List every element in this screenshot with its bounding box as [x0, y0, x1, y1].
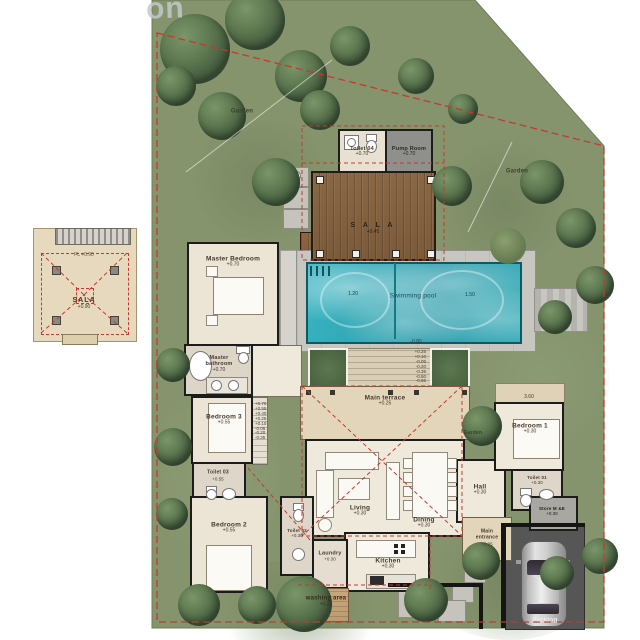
sink-icon — [539, 489, 554, 500]
tree-icon — [156, 348, 190, 382]
pool-ladder-icon — [328, 266, 330, 276]
room-label-living: Living+0.30 — [350, 504, 370, 517]
bush-icon — [490, 228, 526, 264]
bed-icon — [206, 545, 252, 591]
terrace-step-elevations: +0.25+0.10-0.05-0.20-0.35-0.50-0.65 — [408, 350, 426, 384]
room-label-store: Store M &E+0.30 — [537, 506, 567, 516]
parking-label: Parking — [532, 616, 557, 623]
pavilion-column — [52, 316, 61, 325]
pavilion-column — [110, 316, 119, 325]
hob-burner-icon — [394, 544, 398, 548]
tree-icon — [252, 158, 300, 206]
toilet-icon — [520, 494, 532, 507]
pool-ladder-icon — [322, 266, 324, 276]
bed-icon — [213, 277, 264, 315]
deck-column — [392, 250, 400, 258]
car-rear-window — [527, 604, 559, 614]
tv-console-icon — [386, 462, 400, 520]
room-label-toilet02: Toilet 02+0.30 — [287, 528, 307, 538]
tree-icon — [462, 542, 500, 580]
bed-icon — [208, 403, 246, 453]
dining-chair-icon — [403, 500, 413, 511]
room-label-toilet03: Toilet 03+0.55 — [207, 471, 229, 482]
dining-chair-icon — [447, 458, 457, 469]
terrace-column — [330, 390, 335, 395]
tree-icon — [156, 66, 196, 106]
dining-chair-icon — [447, 500, 457, 511]
tree-icon — [538, 300, 572, 334]
toilet-icon — [206, 489, 217, 500]
pavilion-column — [110, 266, 119, 275]
pool-ladder-icon — [316, 266, 318, 276]
nightstand-icon — [206, 315, 218, 326]
tree-icon — [576, 266, 614, 304]
pavilion-label: SALA+0.90 — [72, 297, 95, 311]
tree-icon — [154, 428, 192, 466]
sala-deck — [312, 172, 435, 260]
tree-icon — [404, 578, 448, 622]
terrace-column — [414, 390, 419, 395]
tree-icon — [540, 556, 574, 590]
pool-ladder-icon — [310, 266, 312, 276]
tree-icon — [398, 58, 434, 94]
terrace-column — [306, 390, 311, 395]
room-label-main-entrance: Main entrance+0.25 — [470, 530, 504, 547]
pool-depth-left: 1.20 — [348, 292, 358, 298]
room-label-washing-area: washing area+0.25 — [306, 596, 346, 609]
tree-icon — [300, 90, 340, 130]
room-label-master-bathroom: Master bathroom+0.70 — [196, 355, 242, 373]
room-label-main-terrace: Main terrace+0.25 — [365, 394, 406, 407]
tree-icon — [432, 166, 472, 206]
pool-divider-line — [394, 263, 396, 339]
site-plan: on — [0, 0, 640, 640]
tree-icon — [462, 406, 502, 446]
deck-level-label: -0.80 — [410, 340, 421, 346]
pool-caustic — [420, 270, 504, 330]
stove-icon — [370, 576, 384, 585]
garden-label: Garden — [231, 109, 253, 116]
deck-column — [427, 250, 435, 258]
room-label-toilet04: Toilet 04+0.70 — [350, 146, 374, 158]
garden-label: Garden — [506, 169, 528, 176]
tree-icon — [198, 92, 246, 140]
tree-icon — [238, 586, 276, 624]
room-label-hall: Hall+0.30 — [474, 483, 487, 496]
dining-chair-icon — [447, 486, 457, 497]
dining-chair-icon — [403, 458, 413, 469]
pavilion-steps — [55, 228, 131, 245]
tree-icon — [520, 160, 564, 204]
room-label-kitchen: Kitchen+0.30 — [375, 557, 400, 570]
planter-box — [430, 348, 470, 390]
hob-burner-icon — [401, 544, 405, 548]
room-label-pump-room: Pump Room+0.70 — [392, 146, 426, 158]
tree-icon — [448, 94, 478, 124]
pool-depth-right: 1.50 — [465, 293, 475, 299]
pool-caustic — [320, 272, 390, 328]
planter-box — [308, 348, 348, 390]
corridor — [252, 345, 302, 397]
sink-icon — [292, 548, 305, 561]
pavilion-lower-step — [62, 334, 98, 345]
tree-icon — [556, 208, 596, 248]
sofa-icon — [316, 470, 334, 518]
sink-icon — [222, 488, 236, 500]
deck-column — [352, 250, 360, 258]
sink-icon — [228, 380, 239, 391]
parking-wall — [501, 523, 585, 527]
garden-label: Garden — [464, 431, 483, 437]
tree-icon — [178, 584, 220, 626]
room-label-dining: Dining+0.30 — [413, 516, 434, 529]
toilet-icon — [293, 509, 304, 522]
sink-icon — [211, 380, 222, 391]
room-label-bedroom2: Bedroom 2+0.55 — [211, 521, 247, 534]
tree-icon — [582, 538, 618, 574]
room-label-toilet01: Toilet 01+0.30 — [527, 475, 547, 485]
sala-deck-label: S A L A+0.45 — [351, 222, 396, 236]
garden-wall — [479, 583, 483, 629]
room-label-bedroom1: Bedroom 1+0.30 — [512, 422, 548, 435]
dining-chair-icon — [447, 472, 457, 483]
shower-pad — [283, 209, 309, 229]
kitchen-island-icon — [356, 540, 416, 558]
tree-icon — [225, 0, 285, 50]
dining-chair-icon — [403, 486, 413, 497]
deck-column — [316, 250, 324, 258]
dining-table-icon — [412, 452, 448, 518]
watermark: on — [145, 0, 185, 27]
pavilion-column — [52, 266, 61, 275]
room-label-master-bedroom: Master Bedroom+0.70 — [206, 255, 260, 268]
room-label-bedroom3: Bedroom 3+0.55 — [206, 413, 242, 426]
hob-burner-icon — [394, 550, 398, 554]
pool-label: Swimming pool — [390, 292, 437, 299]
lounge-chair-icon — [318, 518, 332, 532]
tree-icon — [156, 498, 188, 530]
hob-burner-icon — [401, 550, 405, 554]
deck-column — [316, 176, 324, 184]
dimension-label: 3.60 — [524, 395, 534, 401]
tree-icon — [330, 26, 370, 66]
pavilion-fl-label: FL +0.90 — [74, 253, 94, 259]
car-mirror — [516, 560, 521, 564]
sofa-icon — [325, 452, 379, 470]
terrace-column — [462, 390, 467, 395]
garden-path-elevations: +0.70+0.55+0.40+0.25+0.10-0.05-0.20-0.35 — [255, 402, 271, 441]
room-label-laundry: Laundry+0.30 — [318, 550, 341, 561]
dining-chair-icon — [403, 472, 413, 483]
coffee-table-icon — [338, 478, 370, 500]
